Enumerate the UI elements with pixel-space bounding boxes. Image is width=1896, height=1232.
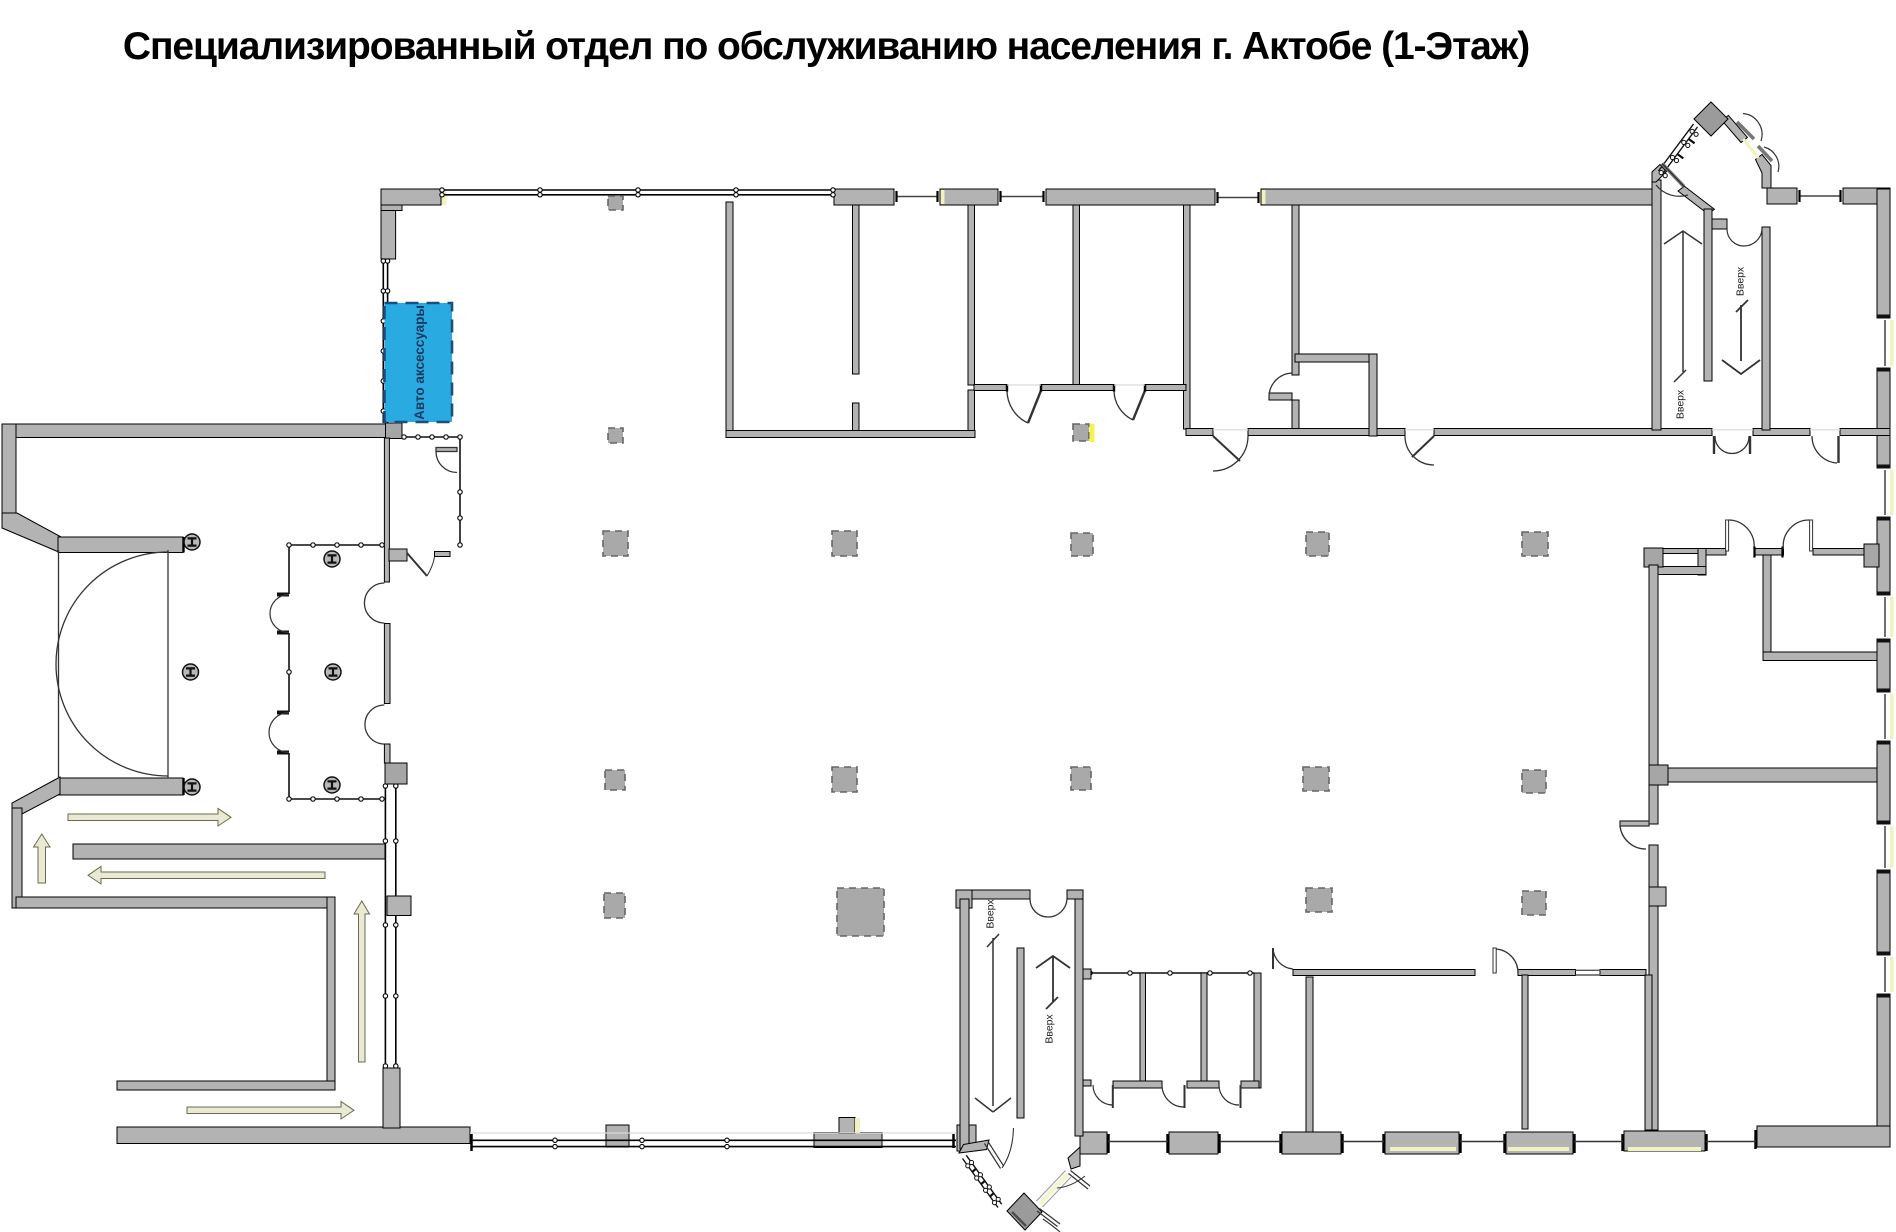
svg-text:Вверх: Вверх (1044, 1014, 1056, 1044)
svg-text:Вверх: Вверх (1675, 389, 1687, 419)
svg-text:Специализированный отдел по об: Специализированный отдел по обслуживанию… (123, 25, 1529, 68)
svg-text:Вверх: Вверх (1735, 266, 1747, 296)
svg-text:Вверх: Вверх (985, 899, 997, 929)
svg-text:Авто аксессуары: Авто аксессуары (412, 305, 427, 420)
